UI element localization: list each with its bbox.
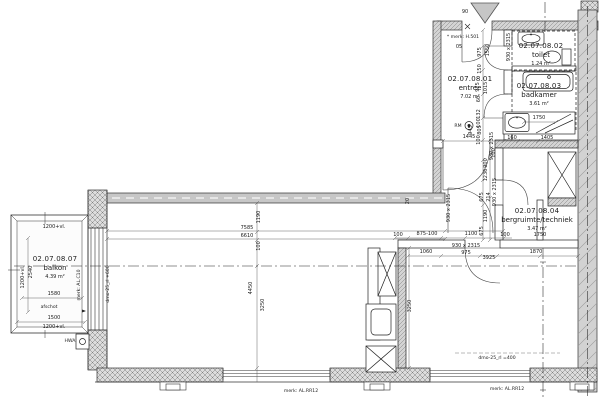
dimension-label: 975 xyxy=(461,250,471,256)
room-number: 02.07.08.07 xyxy=(33,255,78,263)
bergruimte-door xyxy=(503,180,528,205)
dimension-label: 930 x 2315 xyxy=(492,178,498,206)
mark-label: dmo-25_rl =400 xyxy=(478,355,515,361)
dimension-label: 1580 xyxy=(48,291,61,297)
room-area: 3.61 m² xyxy=(529,101,549,107)
duct-shaft xyxy=(548,152,576,206)
room-label-group: 02.07.08.03badkamer3.61 m² xyxy=(517,82,562,107)
dimension-label: 1750 xyxy=(533,115,546,121)
room-name: bergruimte/techniek xyxy=(501,216,573,224)
dimension-label: 3250 xyxy=(407,300,413,313)
mark-label: * merk: H.501 xyxy=(447,34,479,40)
dimension-label: 1200+vl. xyxy=(20,265,26,288)
left-wall-hatch-top xyxy=(88,190,107,228)
dimension-label: 20 xyxy=(405,198,411,204)
dimension-label: 4450 xyxy=(248,282,254,295)
room-area: 1.24 m² xyxy=(531,61,551,67)
dimension-label: 3250 xyxy=(260,299,266,312)
room-number: 02.07.08.03 xyxy=(517,82,562,90)
dimension-label: 100 xyxy=(476,118,482,128)
dimension-label: 1750 xyxy=(534,232,547,238)
mark-label: HWA xyxy=(65,338,77,344)
dimension-label: 150 xyxy=(477,64,483,74)
window-balcony-door xyxy=(88,228,107,330)
entrance-triangle-icon xyxy=(471,3,499,23)
dimension-label: 100 xyxy=(500,232,510,238)
dimension-label: 100 xyxy=(256,241,262,251)
mark-label: afschot xyxy=(41,304,58,310)
room-label-group: 02.07.08.02toilet1.24 m² xyxy=(519,42,564,67)
dimension-label: 1500 xyxy=(48,315,61,321)
room-number: 02.07.08.04 xyxy=(515,207,560,215)
upper-left-wall xyxy=(433,21,441,198)
bottom-wall-3 xyxy=(530,368,597,382)
fixtures-layer xyxy=(58,3,576,372)
dimension-label: 975 xyxy=(475,82,481,92)
dimension-label: 7585 xyxy=(241,225,254,231)
mark-label: dmo-25_rl +600 xyxy=(105,265,111,302)
dimension-label: 100 xyxy=(393,232,403,238)
dimension-label: 60 xyxy=(476,96,482,102)
room-name: badkamer xyxy=(521,91,557,99)
dimension-label: 1190 xyxy=(256,211,262,224)
room-area: 4.39 m² xyxy=(45,274,65,280)
x-marker xyxy=(465,24,470,29)
dimension-label: 100 xyxy=(476,135,482,145)
dimension-label: 90 xyxy=(462,9,468,15)
kitchen-column xyxy=(366,248,396,372)
dimension-label: 3925 xyxy=(483,255,496,261)
dimension-label: 1190 xyxy=(483,210,489,223)
mark-label: merk: AL.RR12 xyxy=(490,386,524,392)
left-wall-hatch-bottom xyxy=(88,330,107,370)
appliance xyxy=(366,304,396,340)
hwa-drain-icon xyxy=(76,334,89,349)
room-number: 02.07.08.02 xyxy=(519,42,564,50)
dimension-label: 1200+vl. xyxy=(43,224,66,230)
bottom-wall-1 xyxy=(97,368,223,382)
thresholds xyxy=(160,382,594,390)
dimension-label: 930 x 2315 xyxy=(506,33,512,61)
window-bottom-right xyxy=(430,368,530,380)
floor-plan-drawing: 02.07.08.01entree7.02 m²02.07.08.02toile… xyxy=(0,0,600,400)
dimension-label: 05 xyxy=(456,44,462,50)
room-label-group: 02.07.08.04bergruimte/techniek3.47 m² xyxy=(501,207,573,232)
windows-layer xyxy=(88,228,594,390)
dimension-label: 945 xyxy=(468,125,474,135)
dimension-label: 1100 xyxy=(465,231,478,237)
window-bottom-left xyxy=(223,368,330,380)
dimension-label: 1060 xyxy=(420,249,433,255)
dimension-label: 6610 xyxy=(241,233,254,239)
dimension-label: 930 x 2315 xyxy=(452,243,480,249)
mark-label: merk: AL.C10 xyxy=(76,269,82,300)
dimension-label: 930 x 2315 xyxy=(446,194,452,222)
washbasin-badkamer xyxy=(505,114,529,132)
dimension-label: 1550 xyxy=(485,44,491,57)
mark-label: merk: AL.RR12 xyxy=(284,388,318,394)
walls-layer xyxy=(88,1,598,392)
dimension-label: 160 xyxy=(507,135,517,141)
room-name: toilet xyxy=(532,51,550,59)
dimension-label: 1405 xyxy=(541,135,554,141)
room-name: balkon xyxy=(43,264,66,272)
dimension-label: 875-100 xyxy=(417,231,438,237)
dimension-label: 1236 xyxy=(483,169,489,182)
dimension-label: 975 xyxy=(477,47,483,57)
dimension-label: 1015 xyxy=(483,82,489,95)
dimension-label: 132 xyxy=(476,109,482,119)
dimension-label: 214 xyxy=(486,192,492,202)
mark-label: RM xyxy=(454,123,461,129)
dimension-label: 675 xyxy=(479,226,485,236)
dimension-label: 2540 xyxy=(28,266,34,279)
dimension-label: 1870 xyxy=(530,249,543,255)
dimension-label: 1200+vl. xyxy=(43,324,66,330)
dimension-label: 930 x 2315 xyxy=(489,132,495,160)
dimension-label: 675 xyxy=(479,192,485,202)
